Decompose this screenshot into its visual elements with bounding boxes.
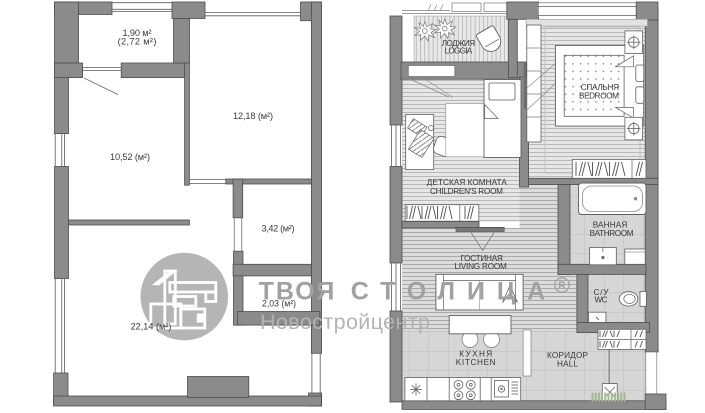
svg-text:10,52 (м²): 10,52 (м²) <box>110 152 150 162</box>
svg-text:3,42 (м²): 3,42 (м²) <box>262 224 295 234</box>
svg-text:BEDROOM: BEDROOM <box>579 92 619 101</box>
svg-text:WC: WC <box>595 295 608 304</box>
svg-text:12,18 (м²): 12,18 (м²) <box>233 111 273 121</box>
svg-text:R: R <box>558 281 566 292</box>
svg-text:ДЕТСКАЯ КОМНАТА: ДЕТСКАЯ КОМНАТА <box>427 178 508 187</box>
svg-text:22,14 (м²): 22,14 (м²) <box>131 321 172 331</box>
svg-text:LIVING ROOM: LIVING ROOM <box>454 262 507 271</box>
svg-text:BATHROOM: BATHROOM <box>590 229 634 238</box>
svg-text:СПАЛЬНЯ: СПАЛЬНЯ <box>581 83 619 92</box>
svg-text:CHILDREN'S ROOM: CHILDREN'S ROOM <box>430 187 503 196</box>
svg-text:2,03 (м²): 2,03 (м²) <box>262 299 296 309</box>
svg-text:KITCHEN: KITCHEN <box>456 358 496 367</box>
svg-text:(2,72 м²): (2,72 м²) <box>118 37 157 47</box>
svg-text:Новостройцентр: Новостройцентр <box>260 310 430 334</box>
svg-text:HALL: HALL <box>557 359 578 368</box>
svg-text:LOGGIA: LOGGIA <box>445 47 473 56</box>
